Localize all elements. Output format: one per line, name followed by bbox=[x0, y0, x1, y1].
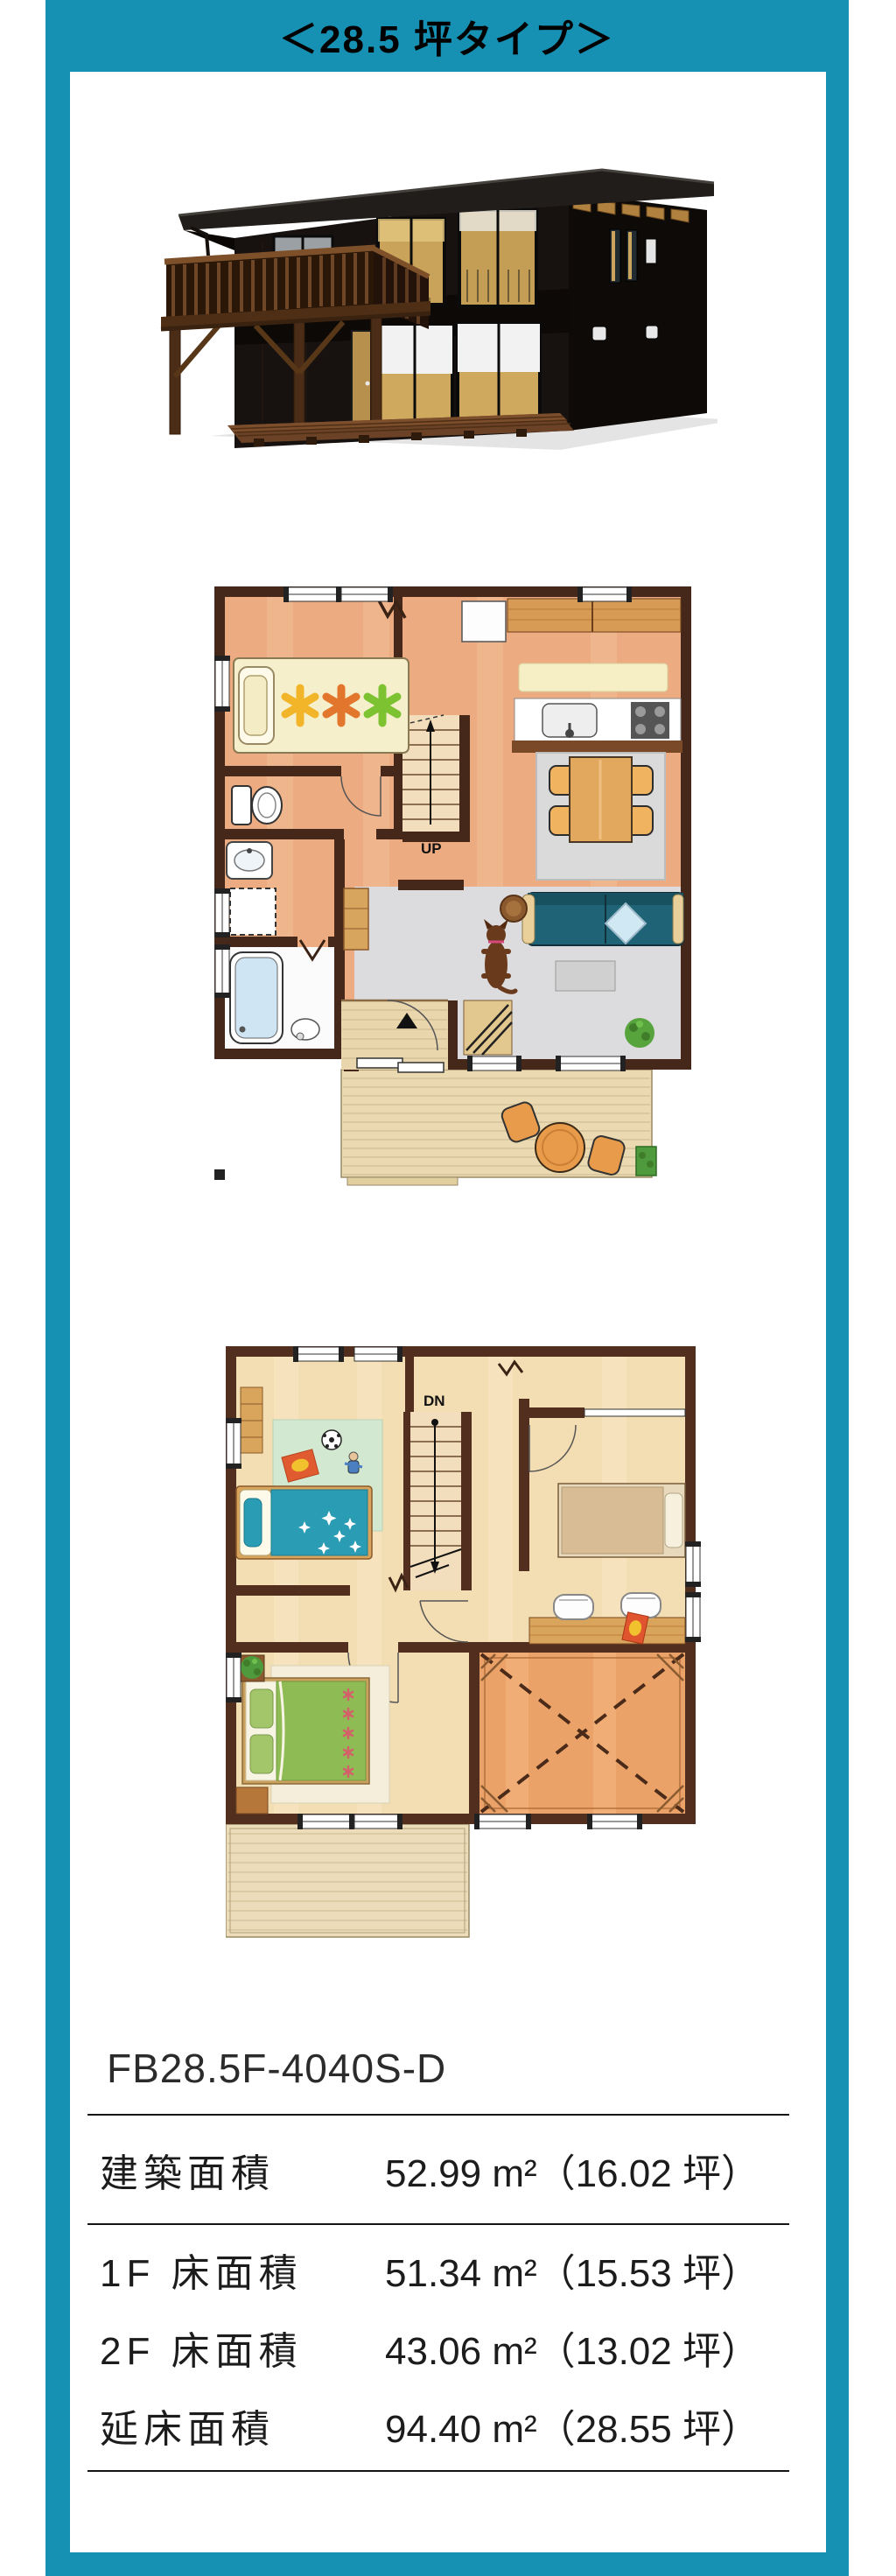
window-icon bbox=[283, 586, 341, 602]
window-icon bbox=[214, 656, 230, 712]
spec-row-total-area: 延床面積 94.40 m²（28.55 坪） bbox=[87, 2397, 789, 2453]
window-icon bbox=[685, 1592, 701, 1642]
plant-icon bbox=[240, 1655, 264, 1681]
window-icon bbox=[214, 944, 230, 998]
side-vent bbox=[592, 326, 606, 340]
spec-value: 43.06 m²（13.02 坪） bbox=[385, 2320, 759, 2376]
spec-value: 52.99 m²（16.02 坪） bbox=[385, 2142, 759, 2198]
balcony-2f bbox=[226, 1824, 469, 1937]
coffee-table bbox=[556, 961, 615, 991]
house-3d-render bbox=[122, 158, 717, 464]
entrance-door bbox=[352, 331, 371, 429]
window-icon bbox=[214, 888, 230, 937]
dining-set bbox=[536, 753, 665, 880]
floor-plan-1f: UP bbox=[214, 586, 691, 1186]
page-title: ＜28.5 坪タイプ＞ bbox=[279, 8, 615, 64]
window-icon bbox=[467, 1056, 521, 1071]
spec-row-group: 1F 床面積 51.34 m²（15.53 坪） 2F 床面積 43.06 m²… bbox=[87, 2225, 789, 2472]
interior-opening bbox=[584, 1409, 685, 1416]
master-bed bbox=[242, 1678, 369, 1784]
spec-value: 51.34 m²（15.53 坪） bbox=[385, 2242, 759, 2298]
roof-balcony bbox=[479, 1653, 685, 1814]
stove-icon bbox=[631, 702, 669, 739]
spec-value: 94.40 m²（28.55 坪） bbox=[385, 2397, 759, 2453]
stairs-down-label: DN bbox=[423, 1393, 445, 1409]
window-icon bbox=[226, 1653, 241, 1702]
frame-top: ＜28.5 坪タイプ＞ bbox=[45, 0, 849, 72]
bed-1f bbox=[234, 658, 409, 753]
nightstand bbox=[236, 1787, 268, 1814]
window-icon bbox=[297, 1814, 354, 1829]
washroom bbox=[227, 842, 276, 935]
stairs-2f: DN bbox=[410, 1393, 461, 1590]
window-icon bbox=[226, 1418, 241, 1469]
window-icon bbox=[354, 1814, 402, 1829]
refrigerator-icon bbox=[462, 601, 506, 642]
side-window bbox=[646, 239, 656, 263]
soccer-ball-icon bbox=[322, 1430, 341, 1449]
counter-top bbox=[507, 599, 681, 632]
spec-table: 建築面積 52.99 m²（16.02 坪） 1F 床面積 51.34 m²（1… bbox=[87, 2114, 789, 2472]
desk-chair bbox=[554, 1595, 593, 1619]
desk bbox=[529, 1618, 685, 1644]
deck-1f bbox=[214, 1070, 656, 1185]
side-vent bbox=[646, 326, 658, 339]
master-bedroom bbox=[236, 1655, 389, 1814]
frame-right bbox=[826, 0, 849, 2576]
window-icon bbox=[577, 586, 632, 602]
spec-label: 1F 床面積 bbox=[100, 2242, 385, 2298]
window-icon bbox=[354, 1346, 402, 1362]
spec-row-1f-area: 1F 床面積 51.34 m²（15.53 坪） bbox=[87, 2242, 789, 2298]
floor-plan-2f: DN bbox=[226, 1346, 703, 1941]
spec-label: 2F 床面積 bbox=[100, 2320, 385, 2376]
window-icon bbox=[341, 586, 393, 602]
kids-bed bbox=[236, 1486, 372, 1559]
window-icon bbox=[474, 1814, 531, 1829]
window-icon bbox=[293, 1346, 344, 1362]
stairs-up-label: UP bbox=[421, 840, 442, 857]
washer-space bbox=[230, 888, 276, 935]
brochure-page: ＜28.5 坪タイプ＞ bbox=[0, 0, 896, 2576]
window-icon bbox=[556, 1056, 626, 1071]
planter-box bbox=[636, 1147, 656, 1176]
spec-row-building-area: 建築面積 52.99 m²（16.02 坪） bbox=[87, 2114, 789, 2225]
house-side-face bbox=[569, 193, 707, 431]
spec-label: 延床面積 bbox=[100, 2397, 385, 2453]
step-strip bbox=[464, 1000, 512, 1055]
model-code: FB28.5F-4040S-D bbox=[107, 2045, 446, 2092]
frame-left bbox=[45, 0, 70, 2576]
pendant-bar bbox=[519, 663, 668, 691]
window-icon bbox=[587, 1814, 642, 1829]
spec-row-2f-area: 2F 床面積 43.06 m²（13.02 坪） bbox=[87, 2320, 789, 2376]
frame-bottom bbox=[45, 2552, 849, 2576]
window-icon bbox=[685, 1541, 701, 1587]
shoe-cabinet bbox=[344, 888, 368, 950]
spec-label: 建築面積 bbox=[100, 2142, 385, 2198]
